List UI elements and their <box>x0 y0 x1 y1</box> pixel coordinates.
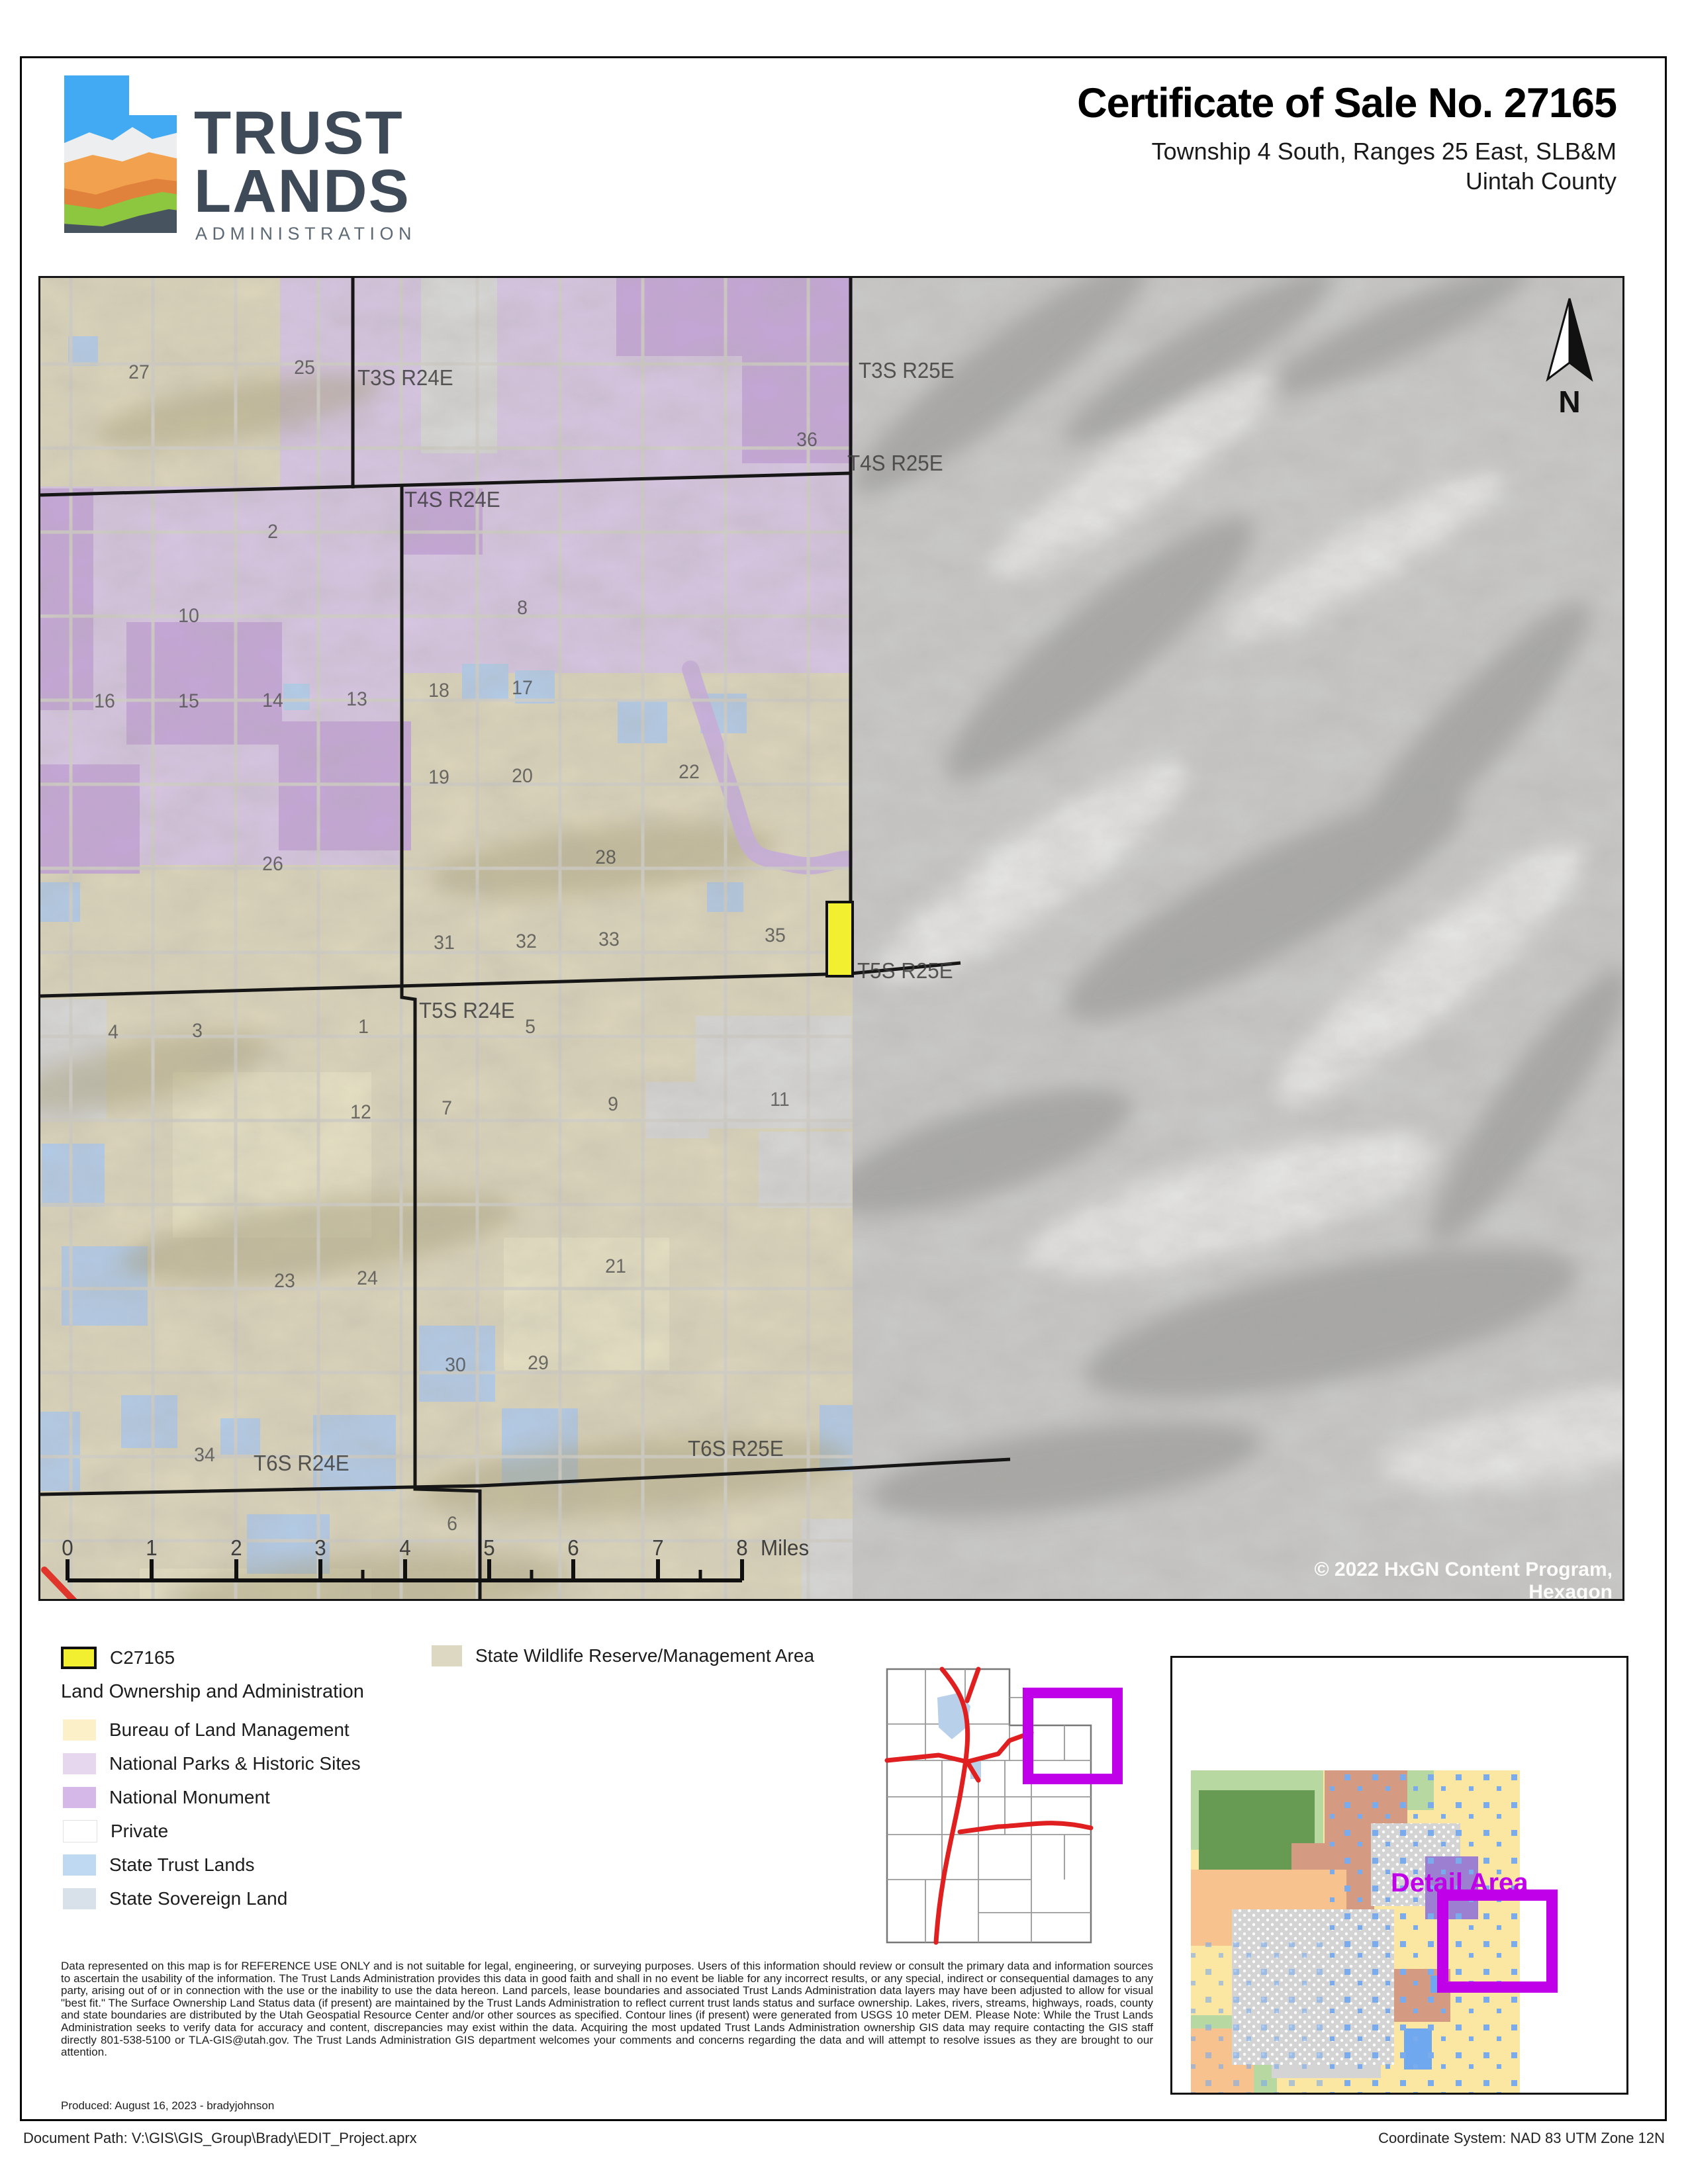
main-map: T3S R24ET3S R25ET4S R25ET4S R24ET5S R25E… <box>38 276 1624 1601</box>
section-number: 26 <box>262 853 283 876</box>
legend-swatch <box>63 1820 97 1843</box>
document-header: Certificate of Sale No. 27165 Township 4… <box>1077 79 1617 196</box>
scalebar-tick-label: 5 <box>483 1535 494 1561</box>
section-number: 15 <box>178 690 199 713</box>
scalebar-tick-label: 3 <box>314 1535 326 1561</box>
legend-item: National Monument <box>63 1780 361 1814</box>
legend-item-label: Private <box>111 1821 168 1842</box>
section-number: 23 <box>274 1270 295 1293</box>
detail-area-inset: Detail Area <box>1170 1656 1628 2095</box>
scalebar-tick-label: 0 <box>62 1535 73 1561</box>
section-number: 2 <box>267 521 278 543</box>
scalebar-tick-label: 1 <box>146 1535 158 1561</box>
legend-section-title: Land Ownership and Administration <box>61 1681 364 1703</box>
section-number: 5 <box>525 1016 536 1038</box>
section-number: 33 <box>598 929 620 951</box>
legend-swatch <box>63 1753 96 1774</box>
legend-item: State Trust Lands <box>63 1848 361 1882</box>
legend-swatch <box>63 1719 96 1741</box>
section-number: 10 <box>178 605 199 627</box>
legend-item: State Sovereign Land <box>63 1882 361 1915</box>
page-title: Certificate of Sale No. 27165 <box>1077 79 1617 127</box>
legend-swatch <box>63 1854 96 1876</box>
scalebar-tick-label: 7 <box>652 1535 663 1561</box>
section-number: 18 <box>428 680 449 702</box>
section-number: 4 <box>108 1021 118 1044</box>
section-number: 14 <box>262 690 283 712</box>
section-number: 9 <box>608 1093 618 1116</box>
legend-item: Private <box>63 1814 361 1848</box>
scalebar-tick-label: 4 <box>399 1535 410 1561</box>
section-number: 17 <box>512 677 533 700</box>
subtitle-county: Uintah County <box>1077 166 1617 196</box>
legend-item-label: National Parks & Historic Sites <box>109 1753 361 1774</box>
legend-item: Bureau of Land Management <box>63 1713 361 1747</box>
section-number: 3 <box>192 1020 203 1042</box>
legend-item: National Parks & Historic Sites <box>63 1747 361 1780</box>
scalebar-tick-label: 6 <box>568 1535 579 1561</box>
section-number: 29 <box>528 1352 549 1375</box>
section-number: 13 <box>346 688 367 711</box>
document-path: Document Path: V:\GIS\GIS_Group\Brady\ED… <box>23 2130 417 2147</box>
section-number: 20 <box>512 765 533 788</box>
section-number: 8 <box>517 597 528 619</box>
legend-parcel-row: C27165 <box>61 1647 175 1669</box>
section-number: 30 <box>445 1354 466 1377</box>
section-number: 28 <box>595 846 616 869</box>
trust-lands-logo: TRUST LANDS ADMINISTRATION <box>63 74 434 250</box>
section-number: 27 <box>128 361 150 384</box>
section-number: 1 <box>358 1016 369 1038</box>
wildlife-swatch <box>432 1645 462 1666</box>
township-label: T6S R25E <box>688 1436 784 1461</box>
section-number: 31 <box>434 932 455 954</box>
coordinate-system: Coordinate System: NAD 83 UTM Zone 12N <box>1378 2130 1665 2147</box>
section-number: 25 <box>294 357 315 379</box>
section-number: 22 <box>679 761 700 784</box>
legend-item-label: State Sovereign Land <box>109 1888 287 1909</box>
section-number: 35 <box>765 925 786 947</box>
section-number: 36 <box>796 429 818 451</box>
section-number: 21 <box>605 1255 626 1278</box>
imagery-attribution: © 2022 HxGN Content Program, Hexagon <box>1262 1559 1613 1601</box>
legend-swatch <box>63 1888 96 1909</box>
page-subtitle: Township 4 South, Ranges 25 East, SLB&M … <box>1077 136 1617 196</box>
scalebar-tick-label: 2 <box>230 1535 242 1561</box>
scalebar-tick-label: 8 <box>736 1535 747 1561</box>
logo-administration-text: ADMINISTRATION <box>195 224 416 244</box>
logo-trust-text: TRUST <box>194 99 404 167</box>
township-label: T5S R24E <box>419 998 515 1023</box>
subtitle-township: Township 4 South, Ranges 25 East, SLB&M <box>1077 136 1617 166</box>
certificate-of-sale-page: TRUST LANDS ADMINISTRATION Certificate o… <box>0 0 1688 2184</box>
north-label: N <box>1553 384 1586 420</box>
section-number: 7 <box>442 1097 452 1120</box>
section-number: 16 <box>94 690 115 713</box>
township-label: T4S R24E <box>404 487 500 512</box>
township-label: T3S R24E <box>357 365 453 390</box>
utah-locator-inset <box>879 1661 1104 1946</box>
detail-highlight-rect <box>1437 1889 1558 1993</box>
section-number: 24 <box>357 1267 378 1290</box>
legend-item-label: State Trust Lands <box>109 1854 254 1876</box>
logo-lands-text: LANDS <box>194 158 410 225</box>
township-label: T5S R25E <box>857 958 953 983</box>
legend-swatch <box>63 1787 96 1808</box>
legend-wildlife-label: State Wildlife Reserve/Management Area <box>475 1645 814 1666</box>
section-number: 19 <box>428 766 449 789</box>
section-number: 11 <box>770 1089 790 1111</box>
scalebar-unit-label: Miles <box>761 1535 809 1561</box>
section-number: 34 <box>194 1444 215 1467</box>
township-label: T6S R24E <box>254 1451 350 1476</box>
utah-logo-icon: TRUST LANDS ADMINISTRATION <box>63 74 434 250</box>
map-labels-layer: T3S R24ET3S R25ET4S R25ET4S R24ET5S R25E… <box>40 278 1624 1601</box>
disclaimer-text: Data represented on this map is for REFE… <box>61 1960 1153 2059</box>
section-number: 32 <box>516 931 537 953</box>
township-label: T3S R25E <box>859 358 955 383</box>
utah-locator-map <box>879 1661 1104 1946</box>
produced-line: Produced: August 16, 2023 - bradyjohnson <box>61 2099 274 2113</box>
legend-ownership-items: Bureau of Land ManagementNational Parks … <box>63 1713 361 1915</box>
section-number: 12 <box>350 1101 371 1124</box>
legend-item-label: National Monument <box>109 1787 270 1808</box>
section-number: 6 <box>447 1513 457 1535</box>
legend-parcel-label: C27165 <box>110 1647 175 1668</box>
legend-wildlife-row: State Wildlife Reserve/Management Area <box>432 1645 814 1666</box>
legend-item-label: Bureau of Land Management <box>109 1719 350 1741</box>
township-label: T4S R25E <box>847 451 943 476</box>
parcel-swatch <box>61 1647 97 1669</box>
